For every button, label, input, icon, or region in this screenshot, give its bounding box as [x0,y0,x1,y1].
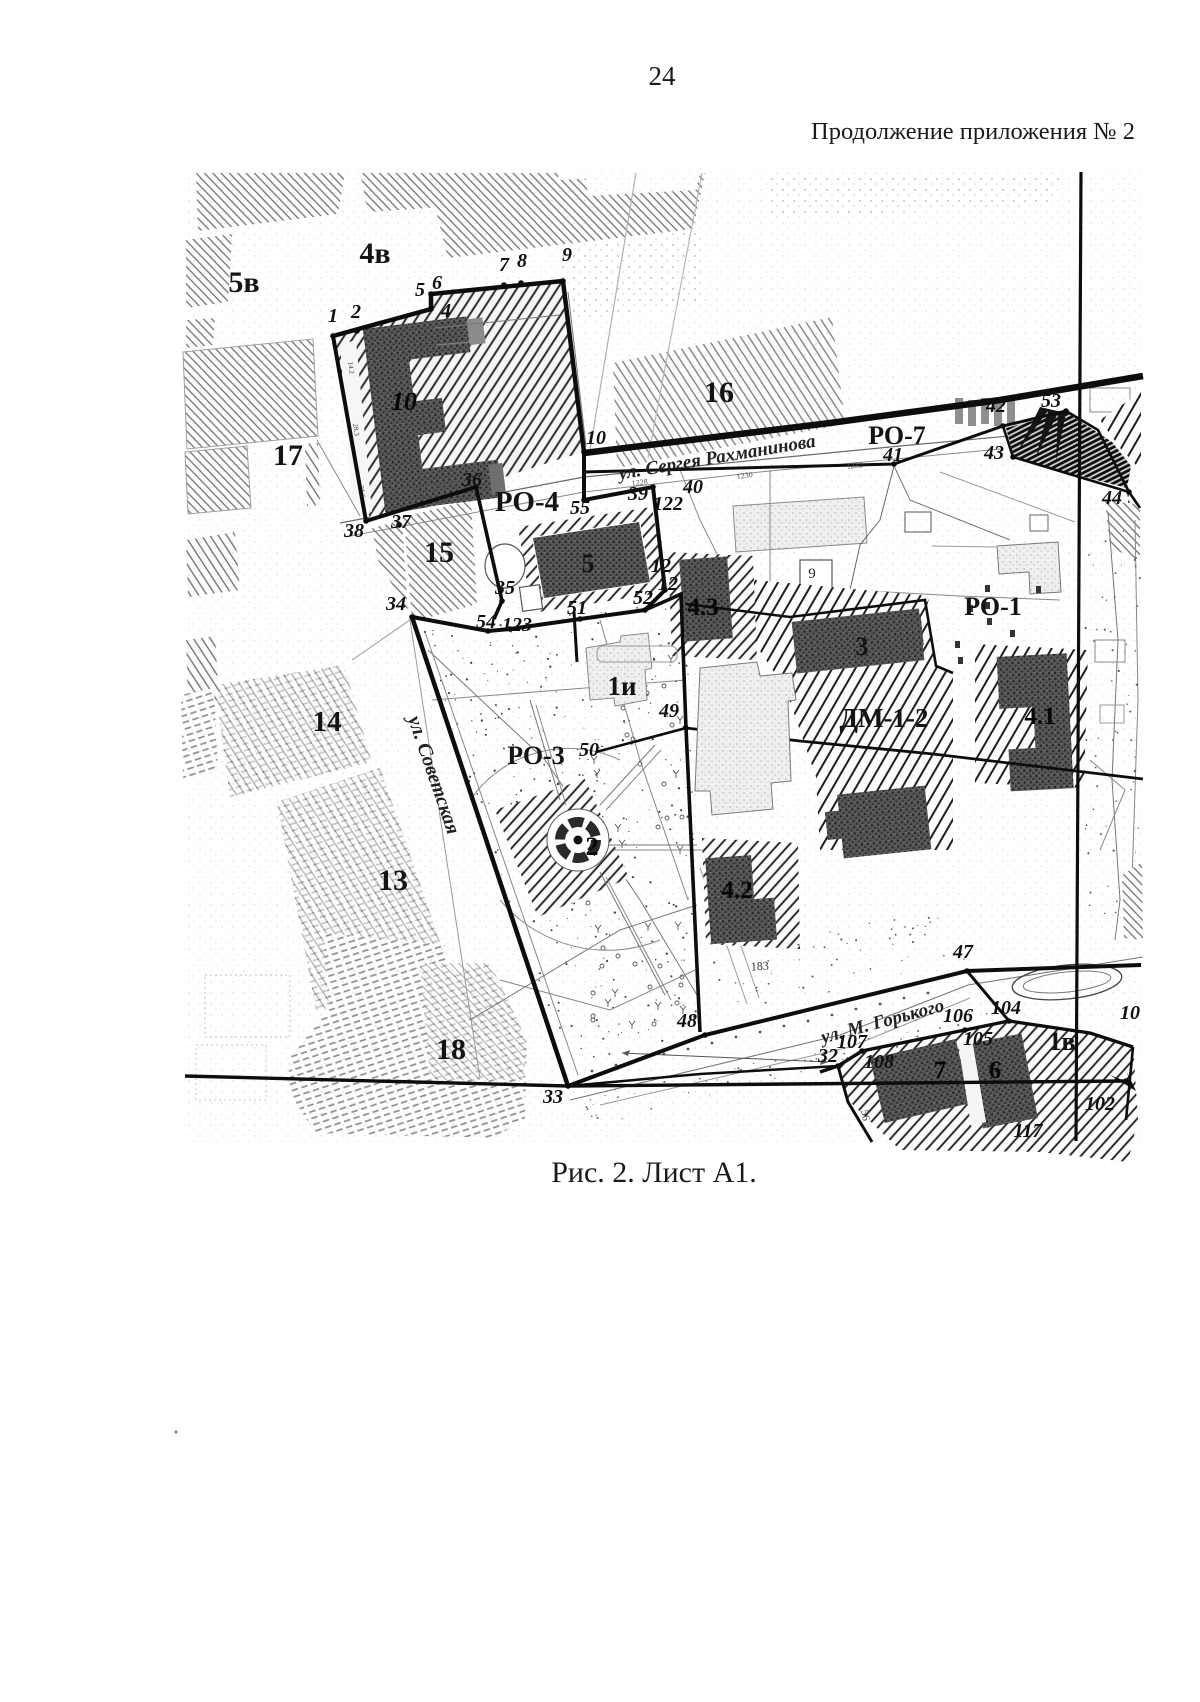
svg-text:6: 6 [989,1057,1002,1084]
svg-text:Рис. 2. Лист А1.: Рис. 2. Лист А1. [551,1156,757,1189]
svg-text:35: 35 [494,577,515,599]
svg-text:41: 41 [882,444,903,466]
svg-text:36: 36 [461,469,482,491]
svg-text:106: 106 [943,1005,973,1027]
svg-text:8: 8 [517,250,527,272]
svg-text:44: 44 [1101,487,1122,509]
svg-text:4.2: 4.2 [721,877,752,904]
svg-text:4.3: 4.3 [687,594,718,621]
svg-text:4в: 4в [359,237,390,270]
svg-text:17: 17 [273,439,303,472]
svg-text:5: 5 [415,279,425,301]
svg-text:Продолжение приложения № 2: Продолжение приложения № 2 [811,118,1135,145]
svg-text:34: 34 [385,593,406,615]
svg-text:ДМ-1-2: ДМ-1-2 [839,703,928,733]
svg-text:РО-1: РО-1 [964,592,1022,621]
svg-text:54: 54 [476,611,496,633]
svg-text:55: 55 [570,497,590,519]
svg-text:40: 40 [682,476,703,498]
svg-text:10: 10 [586,427,606,449]
svg-text:32: 32 [817,1045,838,1067]
svg-text:6: 6 [432,272,442,294]
svg-text:1в: 1в [1048,1027,1075,1056]
svg-text:14: 14 [313,706,342,738]
svg-text:7: 7 [499,254,510,276]
svg-text:43: 43 [983,442,1004,464]
svg-text:50: 50 [579,739,599,761]
svg-text:47: 47 [952,941,974,963]
svg-text:117: 117 [1014,1120,1044,1142]
svg-text:7: 7 [934,1057,947,1084]
svg-text:9: 9 [562,244,572,266]
svg-text:38: 38 [343,520,364,542]
svg-text:12: 12 [658,573,678,595]
svg-text:104: 104 [991,997,1021,1019]
svg-text:53: 53 [1041,390,1061,412]
svg-text:183: 183 [750,959,769,974]
svg-text:33: 33 [542,1086,563,1108]
svg-text:24: 24 [649,61,677,91]
svg-text:39: 39 [627,483,648,505]
svg-text:1и: 1и [607,671,636,701]
svg-text:1: 1 [328,305,338,327]
svg-text:49: 49 [658,700,679,722]
svg-text:4.1: 4.1 [1024,703,1055,730]
svg-text:РО-3: РО-3 [507,741,565,770]
svg-text:122: 122 [653,493,683,515]
svg-text:42: 42 [985,395,1006,417]
svg-text:107: 107 [837,1031,868,1053]
svg-text:105: 105 [963,1028,993,1050]
svg-text:13: 13 [378,864,408,897]
svg-text:РО-4: РО-4 [495,486,559,518]
svg-text:102: 102 [1085,1093,1115,1115]
svg-text:108: 108 [864,1051,894,1073]
svg-text:16: 16 [704,376,734,409]
svg-text:5в: 5в [228,266,259,299]
svg-text:52: 52 [633,587,653,609]
svg-text:18: 18 [436,1033,466,1066]
svg-text:48: 48 [676,1010,697,1032]
svg-text:10: 10 [391,387,417,416]
svg-text:5: 5 [582,549,595,578]
svg-text:37: 37 [390,511,412,533]
svg-text:51: 51 [567,597,587,619]
svg-text:3: 3 [856,632,869,661]
svg-text:2: 2 [586,832,599,861]
svg-text:9: 9 [808,566,816,582]
svg-text:123: 123 [502,614,532,636]
svg-text:15: 15 [424,536,454,569]
svg-text:4: 4 [440,300,451,322]
svg-text:10: 10 [1120,1002,1140,1024]
svg-text:2: 2 [350,301,361,323]
